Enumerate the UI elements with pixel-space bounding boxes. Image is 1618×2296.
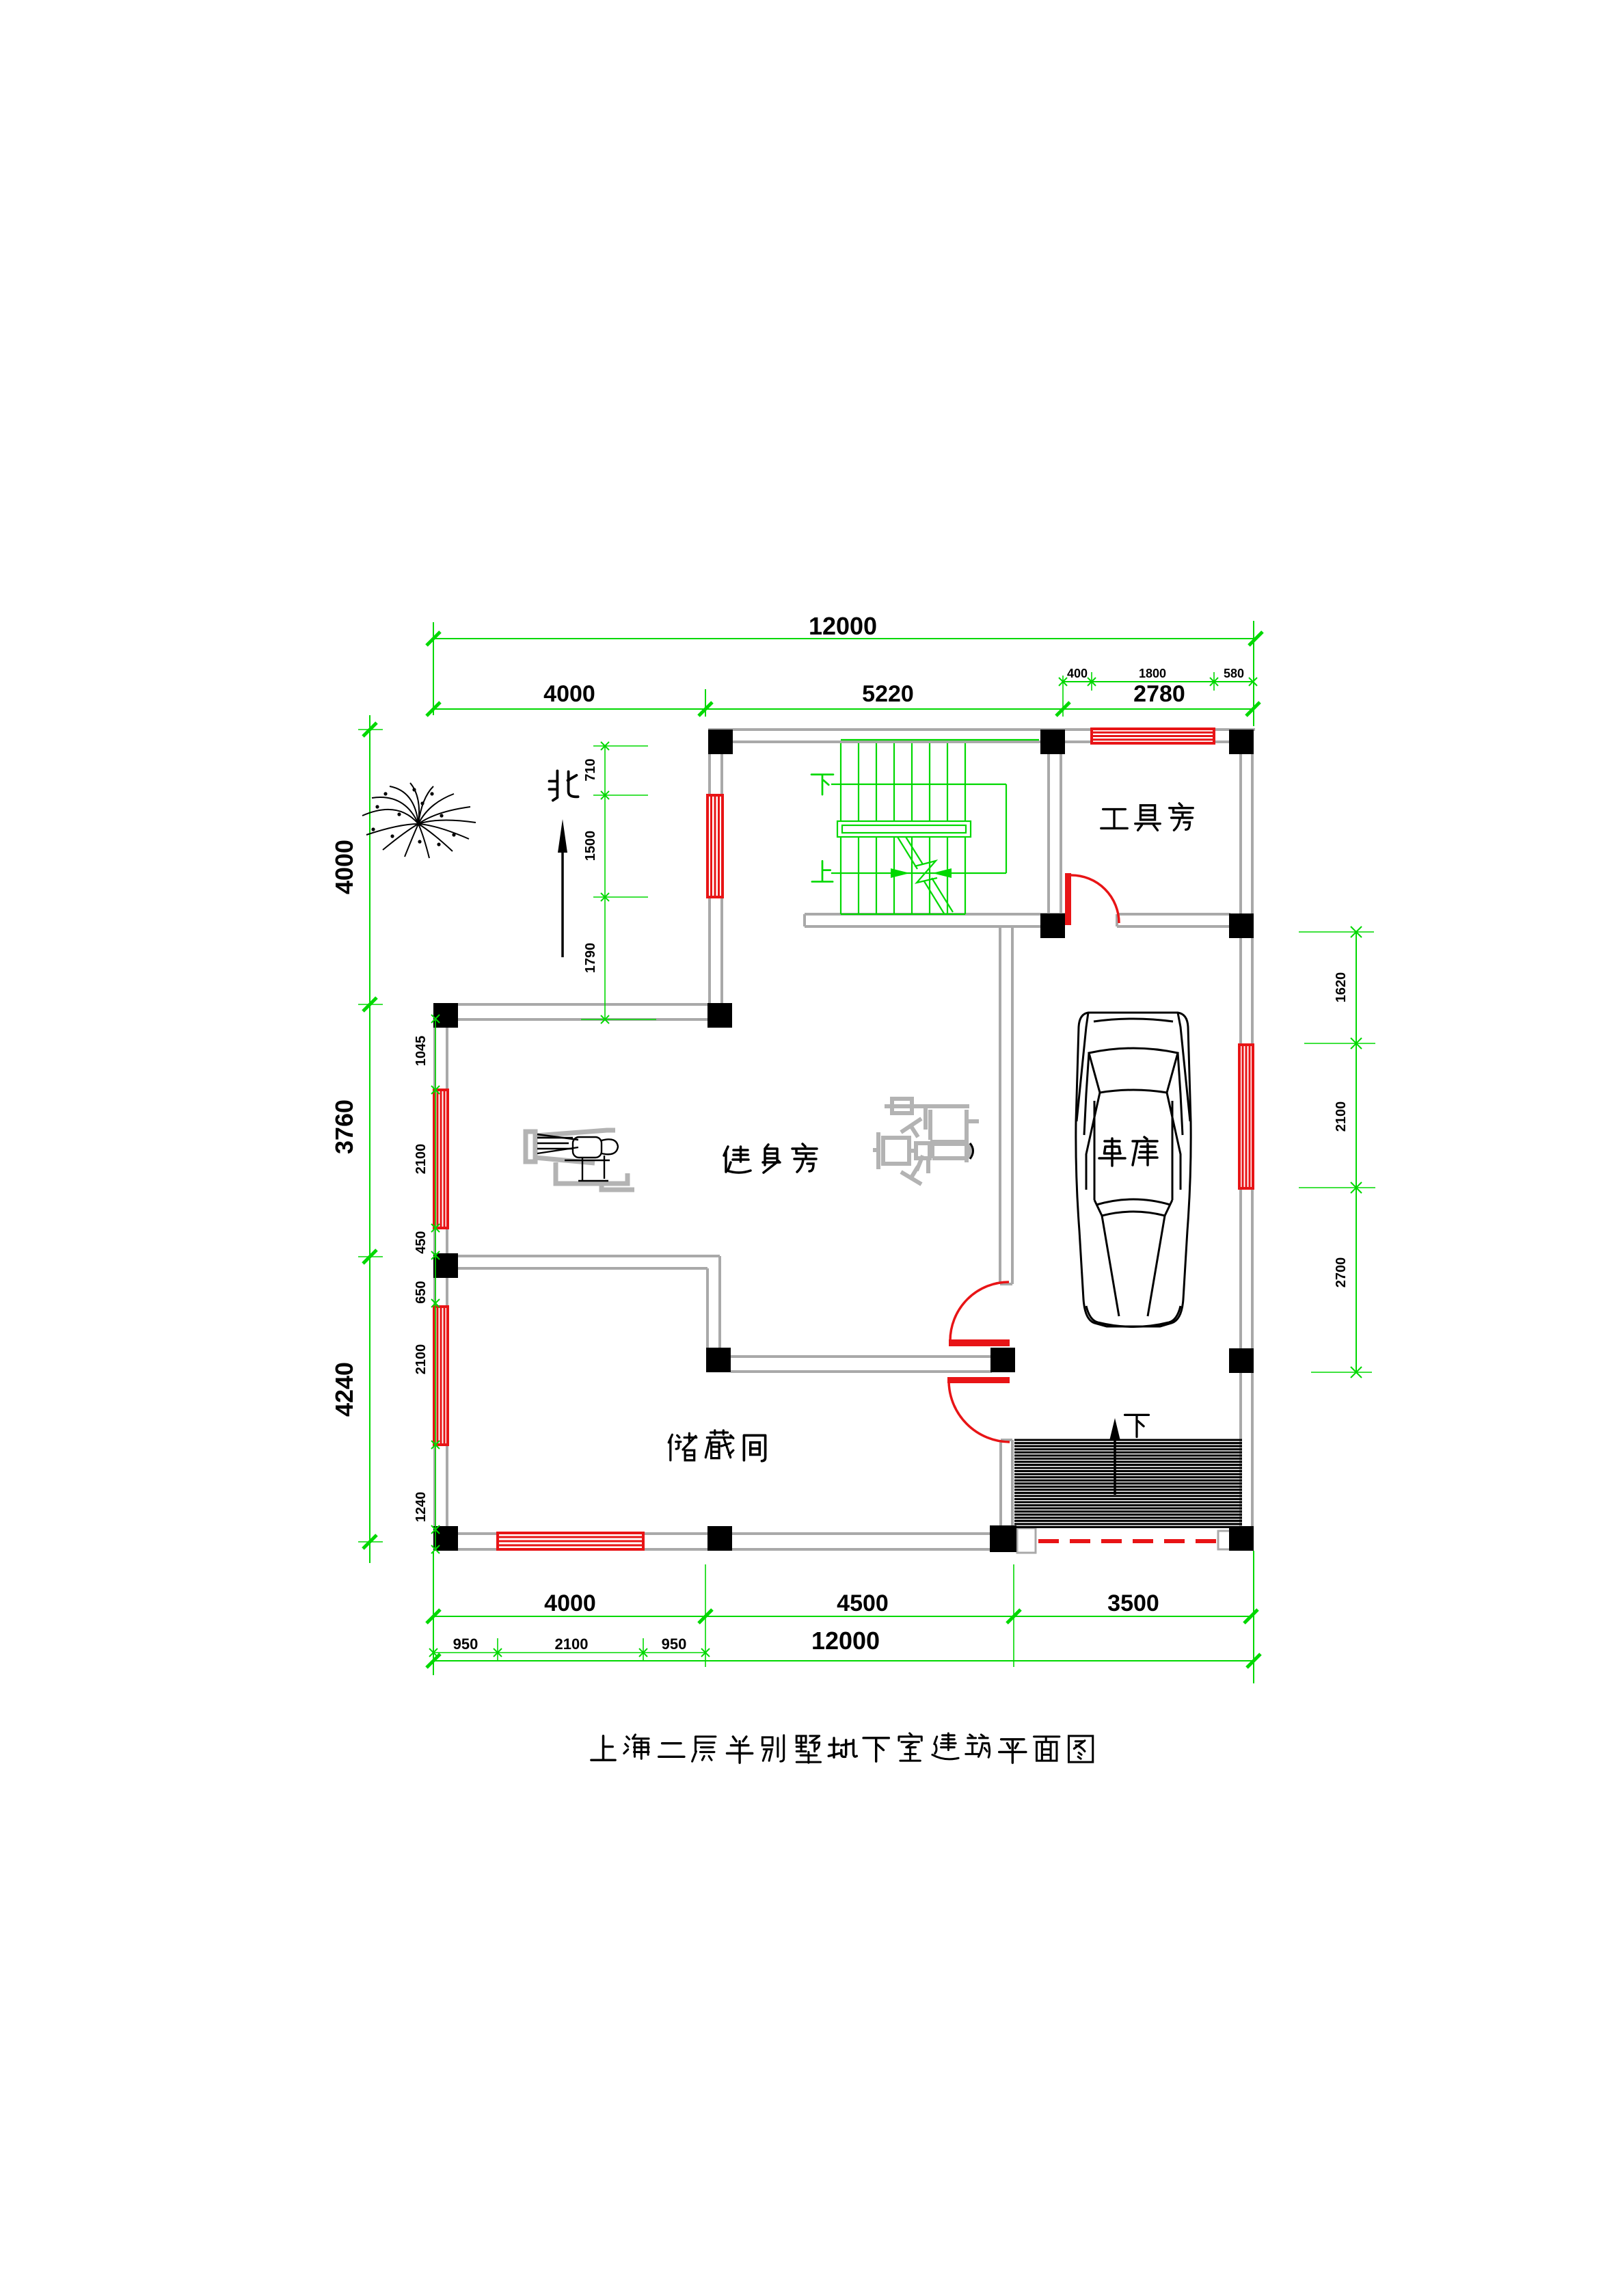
svg-text:1800: 1800 [1139, 667, 1166, 680]
svg-text:710: 710 [583, 758, 598, 781]
svg-text:650: 650 [414, 1281, 429, 1303]
svg-text:4000: 4000 [543, 681, 595, 707]
svg-text:1790: 1790 [583, 943, 598, 974]
svg-text:1500: 1500 [583, 831, 598, 862]
svg-text:2700: 2700 [1334, 1257, 1349, 1288]
svg-text:580: 580 [1224, 667, 1244, 680]
svg-text:3760: 3760 [330, 1099, 358, 1154]
svg-text:2100: 2100 [1334, 1102, 1349, 1132]
svg-text:12000: 12000 [811, 1627, 880, 1655]
svg-text:5220: 5220 [862, 681, 914, 707]
svg-text:4500: 4500 [837, 1590, 889, 1616]
svg-text:950: 950 [662, 1636, 687, 1653]
svg-text:2780: 2780 [1133, 681, 1185, 707]
svg-text:4000: 4000 [330, 840, 358, 894]
svg-text:450: 450 [414, 1231, 429, 1253]
svg-text:1240: 1240 [414, 1492, 429, 1523]
svg-text:2100: 2100 [555, 1636, 589, 1653]
svg-text:400: 400 [1067, 667, 1088, 680]
svg-text:2100: 2100 [414, 1344, 429, 1375]
svg-text:1045: 1045 [414, 1036, 429, 1067]
svg-text:4240: 4240 [330, 1362, 358, 1417]
svg-text:4000: 4000 [544, 1590, 596, 1616]
svg-text:12000: 12000 [809, 612, 877, 640]
svg-text:950: 950 [453, 1636, 478, 1653]
svg-text:2100: 2100 [414, 1144, 429, 1175]
svg-text:3500: 3500 [1107, 1590, 1159, 1616]
svg-text:1620: 1620 [1334, 972, 1349, 1003]
